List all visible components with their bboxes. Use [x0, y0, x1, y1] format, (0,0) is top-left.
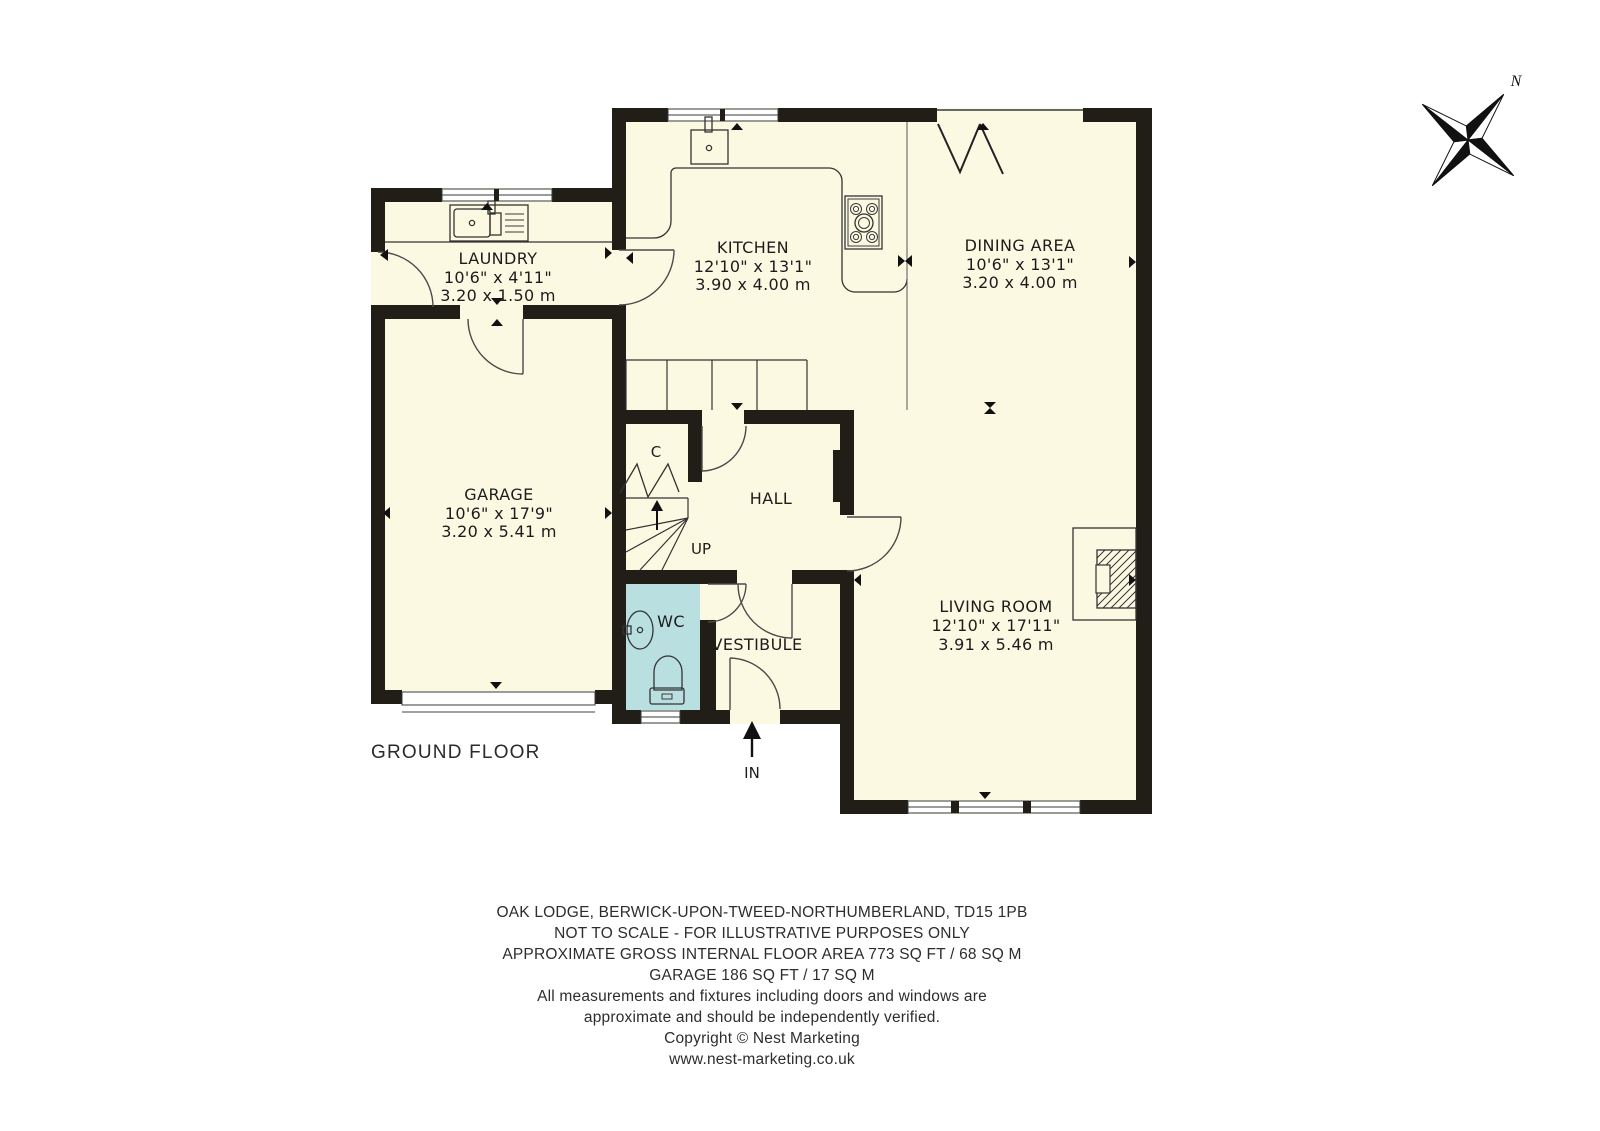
svg-text:DINING AREA: DINING AREA — [965, 236, 1076, 255]
footer-copyright: Copyright © Nest Marketing — [664, 1030, 860, 1047]
compass-icon — [1387, 59, 1550, 222]
svg-text:LIVING ROOM: LIVING ROOM — [939, 597, 1052, 616]
svg-text:LAUNDRY: LAUNDRY — [459, 249, 538, 268]
svg-text:3.91 x 5.46 m: 3.91 x 5.46 m — [938, 635, 1053, 654]
floorplan-page: N LAUNDRY 10'6" x 4'11" 3.20 x 1.50 m KI… — [0, 0, 1600, 1131]
svg-text:GARAGE: GARAGE — [464, 485, 533, 504]
room-label-vestibule: VESTIBULE — [711, 635, 802, 654]
footer-disclaimer-3: approximate and should be independently … — [584, 1009, 940, 1026]
closet-label: C — [651, 443, 661, 461]
svg-text:KITCHEN: KITCHEN — [717, 238, 789, 257]
svg-text:3.90 x 4.00 m: 3.90 x 4.00 m — [695, 275, 810, 294]
room-label-dining-area: DINING AREA 10'6" x 13'1" 3.20 x 4.00 m — [962, 236, 1077, 292]
svg-text:3.20 x 1.50 m: 3.20 x 1.50 m — [440, 286, 555, 305]
footer-disclaimer-2: All measurements and fixtures including … — [537, 988, 987, 1005]
svg-text:3.20 x 4.00 m: 3.20 x 4.00 m — [962, 273, 1077, 292]
entrance-arrow-icon — [743, 721, 761, 757]
stairs-up-label: UP — [691, 540, 711, 558]
room-label-hall: HALL — [750, 489, 792, 508]
svg-text:10'6" x 4'11": 10'6" x 4'11" — [444, 268, 552, 287]
north-label: N — [1510, 73, 1523, 90]
entrance-label: IN — [744, 764, 760, 782]
svg-text:10'6" x 17'9": 10'6" x 17'9" — [445, 504, 553, 523]
wc-floor — [626, 582, 700, 710]
svg-text:3.20 x 5.41 m: 3.20 x 5.41 m — [441, 522, 556, 541]
room-label-wc: WC — [657, 612, 685, 631]
footer-garage-area: GARAGE 186 SQ FT / 17 SQ M — [649, 967, 874, 984]
footer: OAK LODGE, BERWICK-UPON-TWEED-NORTHUMBER… — [497, 904, 1028, 1068]
laundry-window-icon — [442, 189, 552, 201]
room-label-living-room: LIVING ROOM 12'10" x 17'11" 3.91 x 5.46 … — [931, 597, 1060, 654]
footer-website: www.nest-marketing.co.uk — [668, 1051, 855, 1068]
svg-text:12'10" x 13'1": 12'10" x 13'1" — [694, 257, 813, 276]
living-room-window-icon — [908, 801, 1080, 813]
footer-area: APPROXIMATE GROSS INTERNAL FLOOR AREA 77… — [502, 946, 1021, 963]
floor-plan-svg: N LAUNDRY 10'6" x 4'11" 3.20 x 1.50 m KI… — [0, 0, 1600, 1131]
svg-text:12'10" x 17'11": 12'10" x 17'11" — [931, 616, 1060, 635]
footer-disclaimer-1: NOT TO SCALE - FOR ILLUSTRATIVE PURPOSES… — [554, 925, 970, 942]
floor-title: GROUND FLOOR — [371, 742, 541, 763]
garage-door-icon — [402, 692, 595, 712]
kitchen-window-icon — [668, 109, 778, 121]
wc-window-icon — [641, 711, 680, 723]
footer-address: OAK LODGE, BERWICK-UPON-TWEED-NORTHUMBER… — [497, 904, 1028, 921]
svg-text:10'6" x 13'1": 10'6" x 13'1" — [966, 255, 1074, 274]
